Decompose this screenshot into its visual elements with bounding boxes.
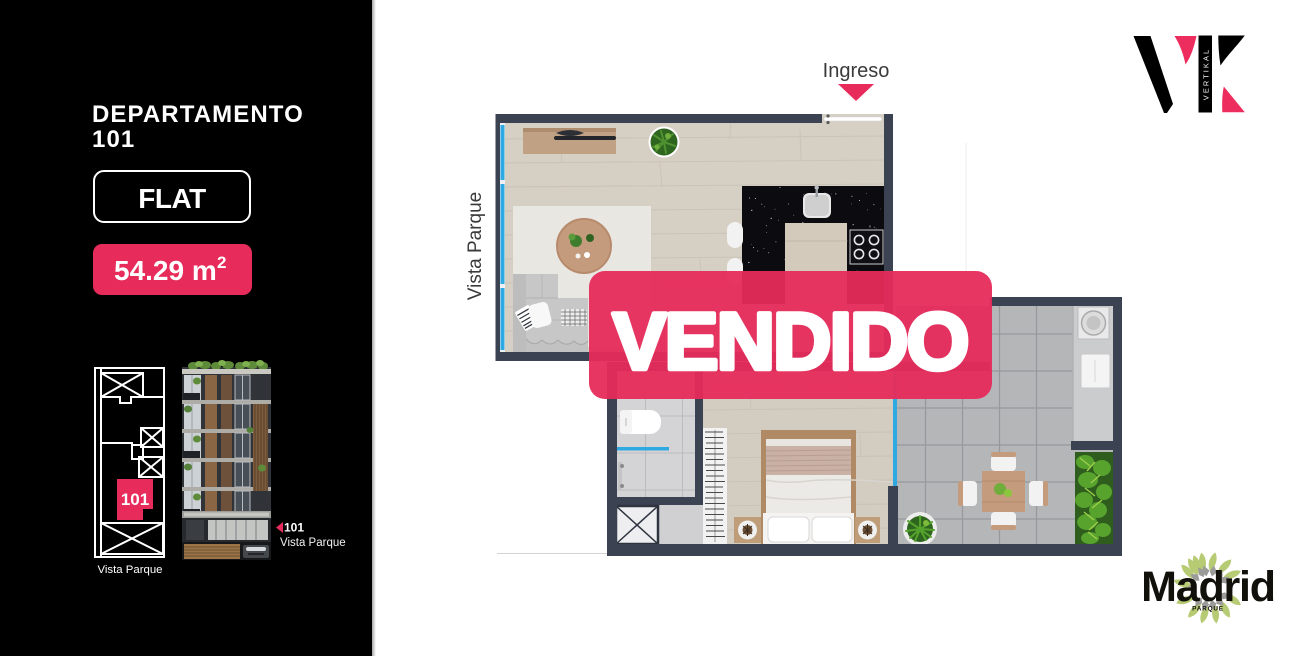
svg-text:FLAT: FLAT (138, 183, 206, 214)
svg-text:PARQUE: PARQUE (1192, 606, 1224, 613)
svg-text:54.29 m: 54.29 m (114, 255, 217, 286)
svg-text:2: 2 (217, 253, 226, 272)
svg-text:DEPARTAMENTO: DEPARTAMENTO (92, 101, 304, 128)
svg-text:Vista Parque: Vista Parque (465, 192, 486, 300)
svg-text:101: 101 (92, 126, 135, 153)
svg-text:Vista Parque: Vista Parque (280, 537, 346, 549)
svg-text:VENDIDO: VENDIDO (612, 297, 967, 387)
svg-text:VERTIKAL: VERTIKAL (1201, 48, 1210, 100)
svg-text:Madrid: Madrid (1141, 563, 1275, 611)
svg-text:101: 101 (284, 521, 304, 535)
svg-text:Vista Parque: Vista Parque (97, 564, 162, 576)
svg-text:101: 101 (121, 490, 149, 509)
svg-text:Ingreso: Ingreso (823, 60, 890, 82)
